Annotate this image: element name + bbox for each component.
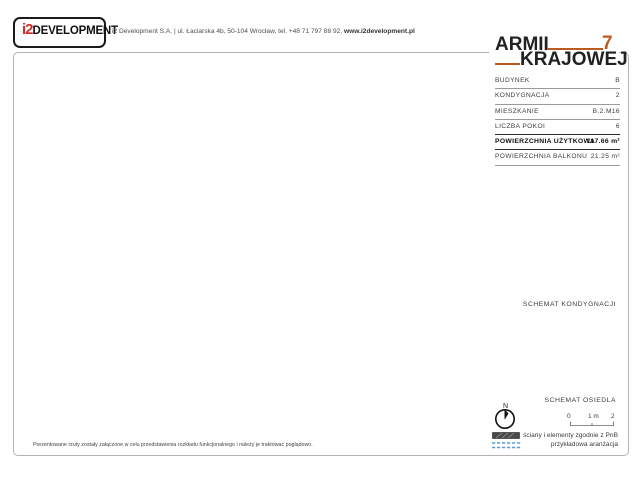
svg-text:N: N xyxy=(503,403,508,410)
